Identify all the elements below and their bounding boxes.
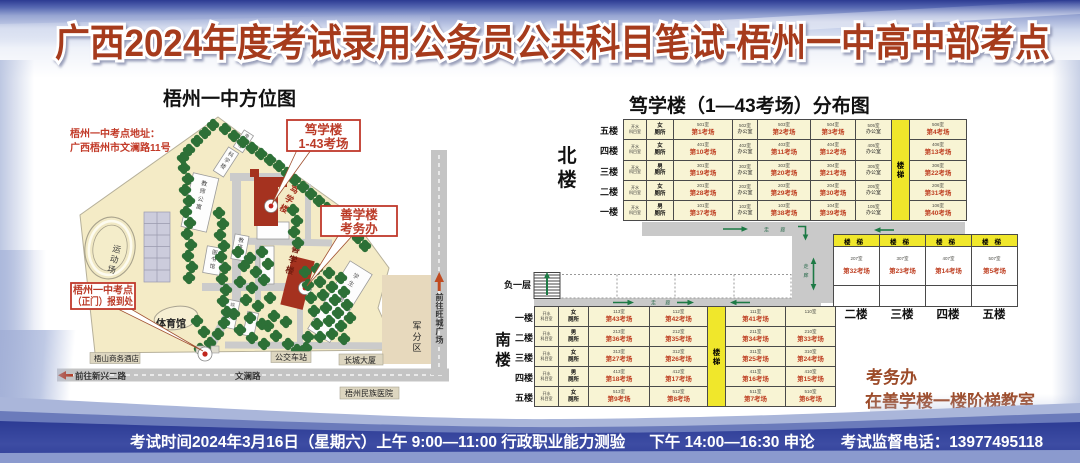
svg-text:前往旺城广场: 前往旺城广场	[436, 292, 444, 345]
svg-text:军分区: 军分区	[412, 321, 421, 353]
svg-text:广西2024年度考试录用公务员公共科目笔试-梧州一中高中部考: 广西2024年度考试录用公务员公共科目笔试-梧州一中高中部考点	[55, 23, 1050, 65]
svg-text:梧山商务酒店: 梧山商务酒店	[94, 353, 139, 363]
svg-text:走 廊: 走 廊	[764, 227, 790, 234]
svg-text:梧州一中考点: 梧州一中考点	[73, 284, 133, 297]
svg-text:公交车站: 公交车站	[275, 352, 307, 362]
svg-text:1-43考场: 1-43考场	[298, 136, 348, 151]
svg-text:（正门）报到处: （正门）报到处	[73, 295, 134, 308]
svg-text:笃学楼: 笃学楼	[304, 122, 343, 137]
svg-text:善学楼: 善学楼	[340, 207, 378, 222]
svg-text:长城大厦: 长城大厦	[344, 355, 376, 365]
svg-text:考务办: 考务办	[340, 221, 378, 236]
